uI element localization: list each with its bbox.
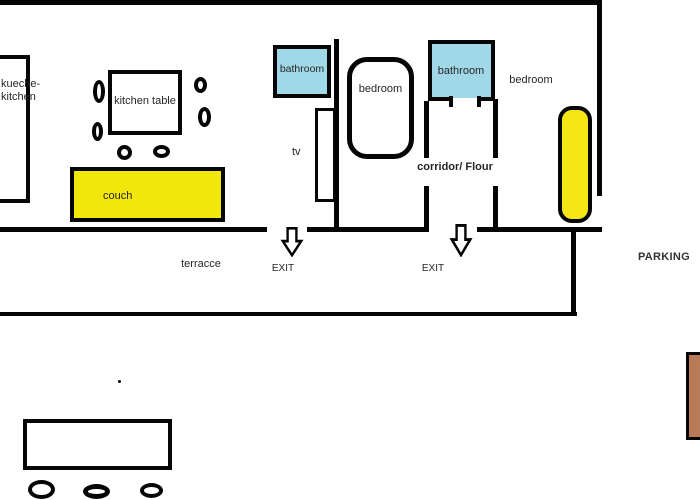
wall-right <box>597 0 602 196</box>
chair-icon <box>198 107 211 127</box>
wall-corridor-left-upper <box>424 101 429 158</box>
kitchen-table-label: kitchen table <box>105 95 185 107</box>
wall-bottom-left-segment <box>0 227 267 232</box>
terrace-table <box>23 419 172 470</box>
floorplan-canvas: kueche- kitchen kitchen table couch tv b… <box>0 0 700 500</box>
chair-icon <box>153 145 170 158</box>
bathroom-1-label: bathroom <box>271 63 333 75</box>
chair-icon <box>28 480 55 499</box>
wall-corridor-right-upper <box>493 99 498 158</box>
wall-terrace-bottom <box>0 312 577 316</box>
couch-label: couch <box>103 190 132 202</box>
parking-label: PARKING <box>632 251 696 263</box>
chair-icon <box>194 77 207 93</box>
kitchen-room-label: kueche- kitchen <box>1 78 40 104</box>
wall-top <box>0 0 602 5</box>
tv <box>315 108 336 202</box>
doormat <box>686 352 700 440</box>
stray-dot <box>118 380 121 383</box>
exit-2-label: EXIT <box>413 263 453 274</box>
bathroom-2-door-gap <box>452 95 477 102</box>
corridor-label: corridor/ Flour <box>410 161 500 173</box>
bedroom-2-bed <box>558 106 592 223</box>
bathroom-2-door-jamb <box>449 96 453 107</box>
bathroom-2-door-jamb <box>477 96 481 107</box>
bedroom-1-bed <box>347 57 414 159</box>
tv-label: tv <box>292 146 301 158</box>
couch <box>70 167 225 222</box>
wall-corridor-right-lower <box>493 186 498 231</box>
chair-icon <box>140 483 163 498</box>
chair-icon <box>93 80 105 103</box>
chair-icon <box>117 145 132 160</box>
bathroom-2-label: bathroom <box>430 65 492 77</box>
exit-1-label: EXIT <box>263 263 303 274</box>
kitchen-room-label-line2: kitchen <box>1 91 40 104</box>
wall-terrace-right <box>571 231 576 314</box>
exit-arrow-down-icon <box>449 224 473 257</box>
bedroom-2-label: bedroom <box>505 74 557 86</box>
terrace-label: terracce <box>171 258 231 270</box>
chair-icon <box>83 484 110 499</box>
kitchen-room-label-line1: kueche- <box>1 78 40 91</box>
chair-icon <box>92 122 103 141</box>
exit-arrow-down-icon <box>280 227 304 257</box>
bedroom-1-label: bedroom <box>347 83 414 95</box>
wall-bottom-middle-segment <box>307 227 429 232</box>
wall-corridor-left-lower <box>424 186 429 231</box>
